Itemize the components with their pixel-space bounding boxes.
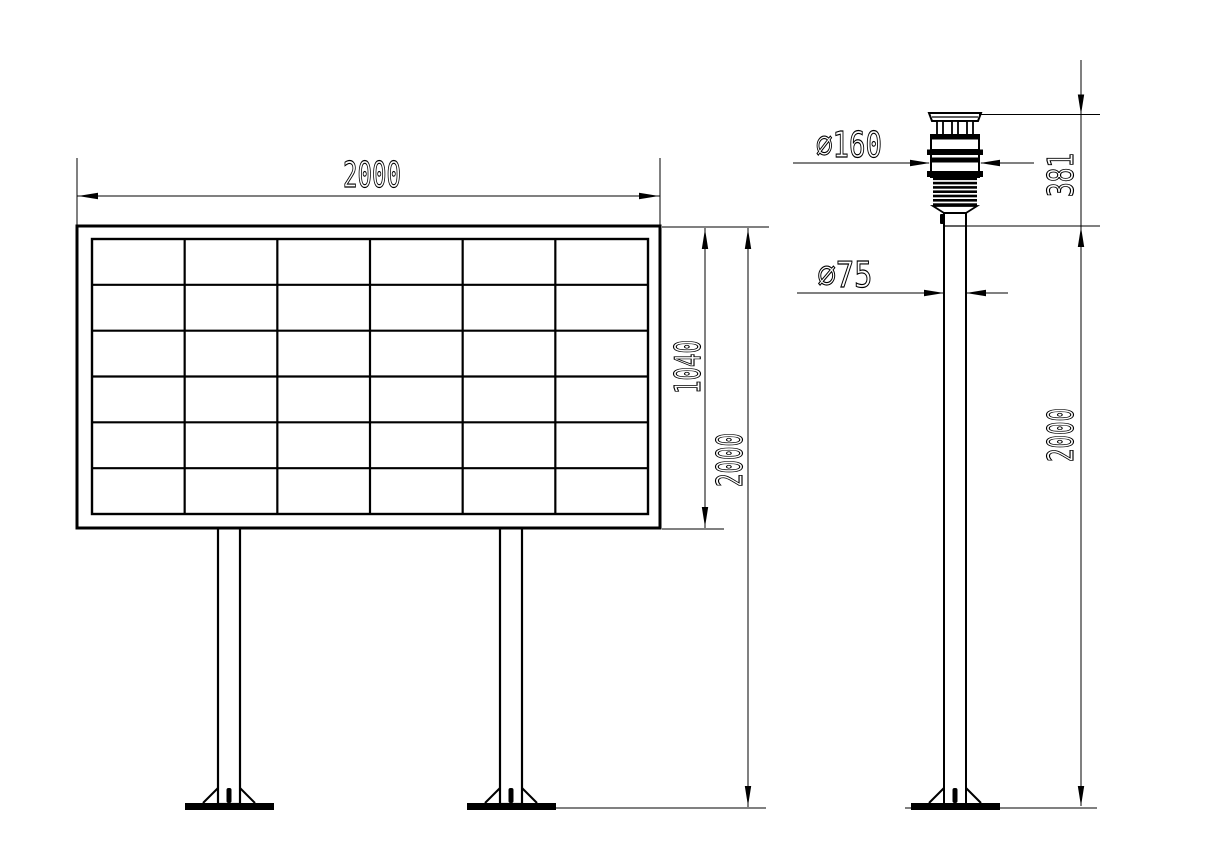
dim-side-overall-height: 2000	[1041, 408, 1084, 806]
left-foot	[185, 788, 274, 810]
arrowhead-right	[924, 290, 944, 296]
dim-front-overall-height: 2000	[710, 228, 751, 807]
display-board-front-view: 2000 1040 2000	[77, 155, 769, 810]
arrowhead-up	[745, 229, 751, 249]
arrowhead-left	[966, 290, 986, 296]
sensor-band	[931, 149, 979, 155]
gusset	[240, 788, 255, 803]
base-plate	[911, 803, 1000, 810]
right-foot	[467, 788, 556, 810]
panel-height-dim-label: 1040	[668, 340, 709, 394]
sensor-band	[931, 171, 979, 177]
mounting-pole	[944, 213, 966, 804]
sensor-body	[931, 135, 979, 177]
arrowhead-left	[980, 160, 1000, 166]
sensor-post	[937, 121, 943, 135]
base-plate	[467, 803, 556, 810]
arrowhead-right	[639, 193, 659, 199]
sensor-height-dim-label: 381	[1041, 153, 1082, 197]
gusset	[966, 788, 981, 803]
base-plate	[185, 803, 274, 810]
left-leg	[218, 528, 240, 804]
sensor-diameter-dim-label: ∅160	[816, 125, 882, 166]
arrowhead-down	[702, 507, 708, 527]
cad-drawing-sheet: 2000 1040 2000	[0, 0, 1228, 864]
anchor-stub	[509, 788, 514, 803]
arrowhead-down	[1078, 95, 1084, 115]
arrowhead-down	[745, 786, 751, 806]
arrowhead-left	[78, 193, 98, 199]
dim-sensor-diameter: ∅160	[793, 125, 1034, 166]
gusset	[522, 788, 537, 803]
sensor-neck-transition	[933, 206, 977, 213]
pole-foot	[911, 788, 1000, 810]
sensor-pole-side-view: ∅160 ∅75 381 2000	[793, 60, 1100, 810]
right-leg	[500, 528, 522, 804]
dim-pole-diameter: ∅75	[797, 255, 1008, 296]
front-overall-height-dim-label: 2000	[710, 433, 751, 487]
panel-width-dim-label: 2000	[343, 155, 401, 196]
dim-panel-width: 2000	[77, 155, 660, 226]
side-overall-height-dim-label: 2000	[1041, 408, 1082, 462]
sensor-band	[931, 135, 979, 140]
sensor-clamp	[927, 150, 931, 156]
arrowhead-up	[702, 229, 708, 249]
sensor-post	[967, 121, 973, 135]
sensor-band	[931, 158, 979, 163]
arrowhead-down	[1078, 786, 1084, 806]
gusset	[485, 788, 500, 803]
sensor-clamp	[927, 171, 931, 177]
anchor-stub	[953, 788, 958, 803]
sensor-post	[952, 121, 958, 135]
gusset	[203, 788, 218, 803]
arrowhead-up	[1078, 227, 1084, 247]
anchor-stub	[227, 788, 232, 803]
sensor-clamp	[979, 150, 983, 156]
gusset	[929, 788, 944, 803]
radiation-shield-fins	[933, 178, 977, 206]
sensor-clamp	[979, 171, 983, 177]
pole-diameter-dim-label: ∅75	[818, 255, 873, 296]
arrowhead-right	[910, 160, 930, 166]
weather-sensor	[927, 113, 983, 224]
